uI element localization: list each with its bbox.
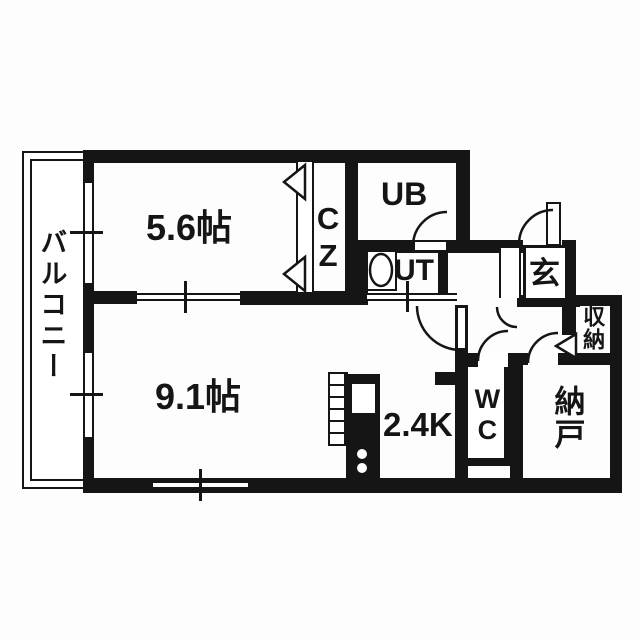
- toilet-door-arc: [478, 331, 508, 361]
- floor-plan: バルコニー 5.6帖 CZ UB UT 玄 収納 9.1帖 2.4K WC 納戸: [0, 0, 640, 640]
- room-label-storage-upper: 収納: [581, 305, 604, 355]
- room-label-bath: UB: [381, 178, 427, 212]
- room-label-utility: UT: [394, 255, 434, 287]
- room-label-bedroom: 5.6帖: [146, 209, 232, 247]
- closet-folding-door-icon: [284, 165, 305, 199]
- ut-basin-icon: [370, 254, 392, 286]
- room-label-kitchen: 2.4K: [383, 408, 453, 443]
- room-label-living: 9.1帖: [155, 378, 241, 416]
- storage-folding-door-icon: [556, 334, 576, 358]
- room-label-storage-room: 納戸: [550, 385, 583, 455]
- door-symbols-layer: [0, 0, 640, 640]
- closet-folding-door-icon: [284, 257, 305, 291]
- bath-door-arc: [413, 212, 447, 246]
- room-label-closet: CZ: [311, 201, 344, 296]
- hall-door-arc: [417, 306, 461, 350]
- storageroom-door-arc: [528, 333, 558, 363]
- room-label-balcony: バルコニー: [37, 228, 65, 438]
- entrance-step-arc: [497, 307, 517, 327]
- entrance-door-arc: [519, 210, 553, 244]
- room-label-entrance: 玄: [529, 258, 560, 291]
- room-label-toilet: WC: [473, 384, 501, 454]
